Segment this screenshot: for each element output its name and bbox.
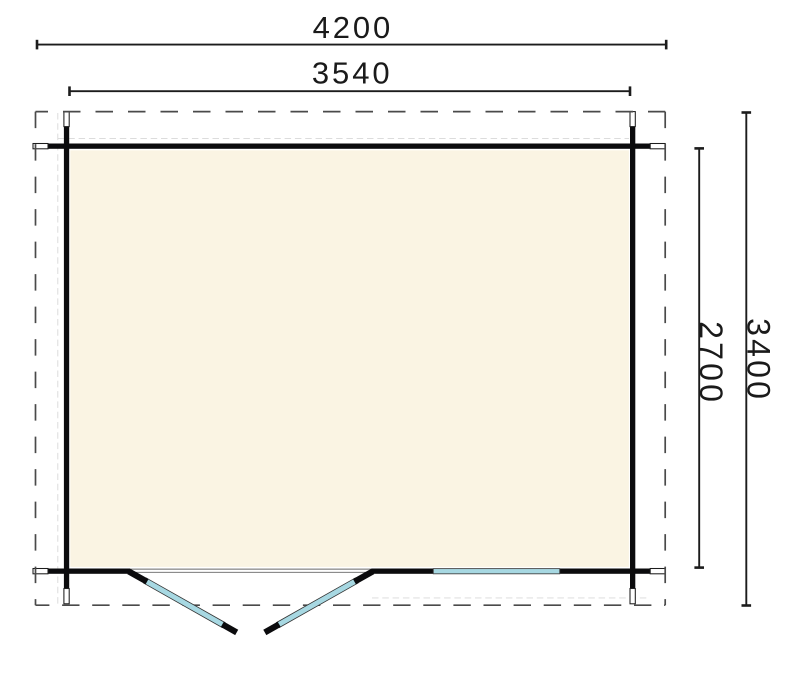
svg-text:3540: 3540: [312, 55, 393, 90]
svg-text:4200: 4200: [313, 10, 394, 45]
svg-text:2700: 2700: [693, 321, 729, 405]
svg-text:3400: 3400: [740, 318, 776, 402]
